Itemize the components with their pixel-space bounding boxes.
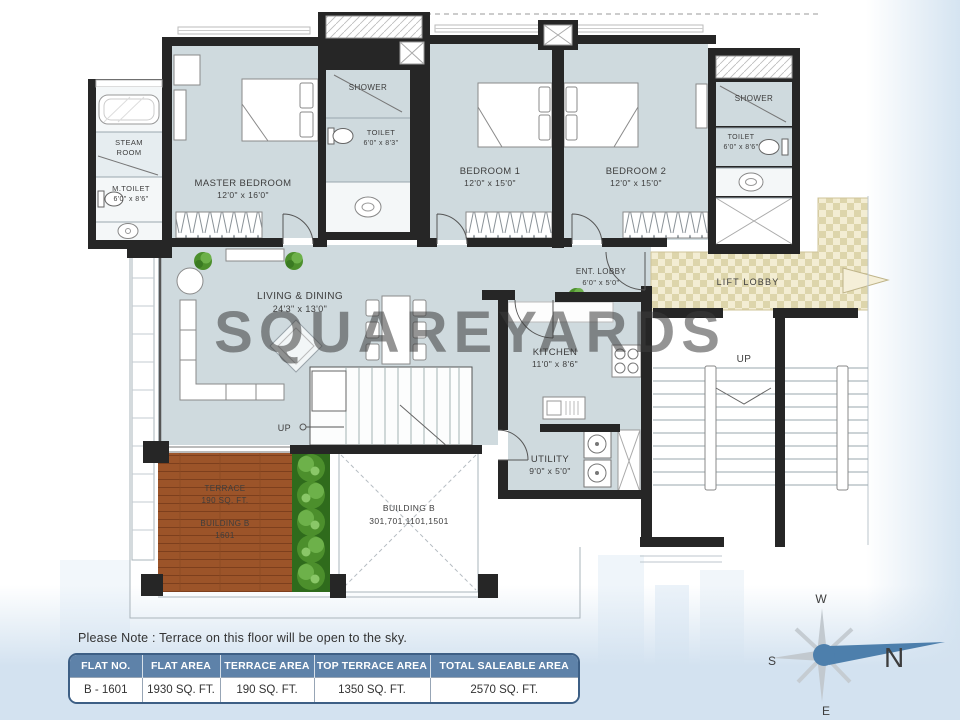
header-top-terrace-area: TOP TERRACE AREA bbox=[314, 655, 430, 678]
window-ledges bbox=[178, 25, 703, 34]
label-utility: UTILITY bbox=[531, 454, 569, 465]
label-utility-dims: 9'0" x 5'0" bbox=[529, 466, 571, 476]
label-terrace-building: BUILDING B bbox=[200, 519, 249, 528]
washbasin-icon bbox=[739, 173, 763, 191]
outer-staircase bbox=[653, 366, 868, 490]
compass-rose: W S E N bbox=[768, 592, 945, 718]
room-steam-mtoilet-column bbox=[88, 79, 172, 249]
watermark: SQUAREYARDS bbox=[214, 300, 726, 365]
compass-n: N bbox=[884, 642, 904, 673]
label-steam-room: ROOM bbox=[117, 148, 142, 157]
room-shower-toilet-left bbox=[318, 12, 430, 240]
label-toilet-right-dims: 6'0" x 8'6" bbox=[723, 144, 758, 151]
label-m-toilet: M.TOILET bbox=[112, 184, 150, 193]
label-void-building: BUILDING B bbox=[383, 503, 435, 513]
floor-plan-page: STEAM ROOM M.TOILET 6'0" x 8'6" MASTER B… bbox=[0, 0, 960, 720]
label-toilet-left-dims: 6'0" x 8'3" bbox=[363, 140, 398, 147]
header-total-saleable-area: TOTAL SALEABLE AREA bbox=[430, 655, 578, 678]
terrace-planter bbox=[292, 453, 330, 592]
tv-unit bbox=[226, 249, 284, 261]
terrace-note: Please Note : Terrace on this floor will… bbox=[78, 631, 407, 645]
label-up-inner: UP bbox=[278, 423, 291, 433]
label-terrace-area: 190 SQ. FT. bbox=[201, 496, 248, 505]
cell-top-terrace-area: 1350 SQ. FT. bbox=[314, 678, 430, 703]
compass-s: S bbox=[768, 654, 776, 668]
label-master-bedroom-dims: 12'0" x 16'0" bbox=[217, 190, 269, 200]
label-steam-room: STEAM bbox=[115, 138, 143, 147]
area-table-header-row: FLAT NO. FLAT AREA TERRACE AREA TOP TERR… bbox=[70, 655, 578, 678]
compass-e: E bbox=[822, 704, 830, 718]
cell-total-saleable-area: 2570 SQ. FT. bbox=[430, 678, 578, 703]
floor-plan-drawing: STEAM ROOM M.TOILET 6'0" x 8'6" MASTER B… bbox=[0, 0, 960, 720]
label-m-toilet-dims: 6'0" x 8'6" bbox=[113, 196, 148, 203]
label-bedroom-1: BEDROOM 1 bbox=[460, 166, 521, 177]
header-flat-no: FLAT NO. bbox=[70, 655, 142, 678]
cell-flat-no: B - 1601 bbox=[70, 678, 142, 703]
toilet-icon bbox=[98, 191, 104, 207]
cell-flat-area: 1930 SQ. FT. bbox=[142, 678, 220, 703]
washbasin-icon bbox=[355, 197, 381, 217]
label-shower-left: SHOWER bbox=[349, 83, 387, 92]
side-table bbox=[177, 268, 203, 294]
area-table-row: B - 1601 1930 SQ. FT. 190 SQ. FT. 1350 S… bbox=[70, 678, 578, 703]
wardrobe bbox=[466, 212, 552, 238]
header-terrace-area: TERRACE AREA bbox=[220, 655, 314, 678]
wardrobe bbox=[176, 212, 262, 238]
area-table: FLAT NO. FLAT AREA TERRACE AREA TOP TERR… bbox=[68, 653, 580, 704]
label-shower-right: SHOWER bbox=[735, 94, 773, 103]
room-shower-toilet-right bbox=[708, 48, 800, 254]
dresser bbox=[174, 90, 186, 140]
label-master-bedroom: MASTER BEDROOM bbox=[195, 178, 292, 189]
label-void-units: 301,701,1101,1501 bbox=[369, 516, 448, 526]
compass-w: W bbox=[815, 592, 827, 606]
label-terrace: TERRACE bbox=[204, 484, 245, 493]
washbasin-icon bbox=[118, 224, 138, 239]
cell-terrace-area: 190 SQ. FT. bbox=[220, 678, 314, 703]
label-ent-lobby: ENT. LOBBY bbox=[576, 267, 627, 276]
label-terrace-unit: 1601 bbox=[215, 531, 235, 540]
label-bedroom-1-dims: 12'0" x 15'0" bbox=[464, 178, 516, 188]
label-bedroom-2-dims: 12'0" x 15'0" bbox=[610, 178, 662, 188]
dresser bbox=[696, 84, 707, 128]
label-bedroom-2: BEDROOM 2 bbox=[606, 166, 667, 177]
label-ent-lobby-dims: 6'0" x 5'0" bbox=[582, 278, 619, 287]
label-lift-lobby: LIFT LOBBY bbox=[717, 277, 780, 287]
wardrobe bbox=[623, 212, 708, 238]
label-toilet-left: TOILET bbox=[367, 128, 396, 137]
toilet-icon bbox=[759, 140, 779, 155]
label-toilet-right: TOILET bbox=[728, 134, 755, 141]
sink-unit-icon bbox=[543, 397, 585, 419]
header-flat-area: FLAT AREA bbox=[142, 655, 220, 678]
label-up-outer: UP bbox=[737, 354, 752, 365]
inner-staircase bbox=[300, 367, 472, 447]
